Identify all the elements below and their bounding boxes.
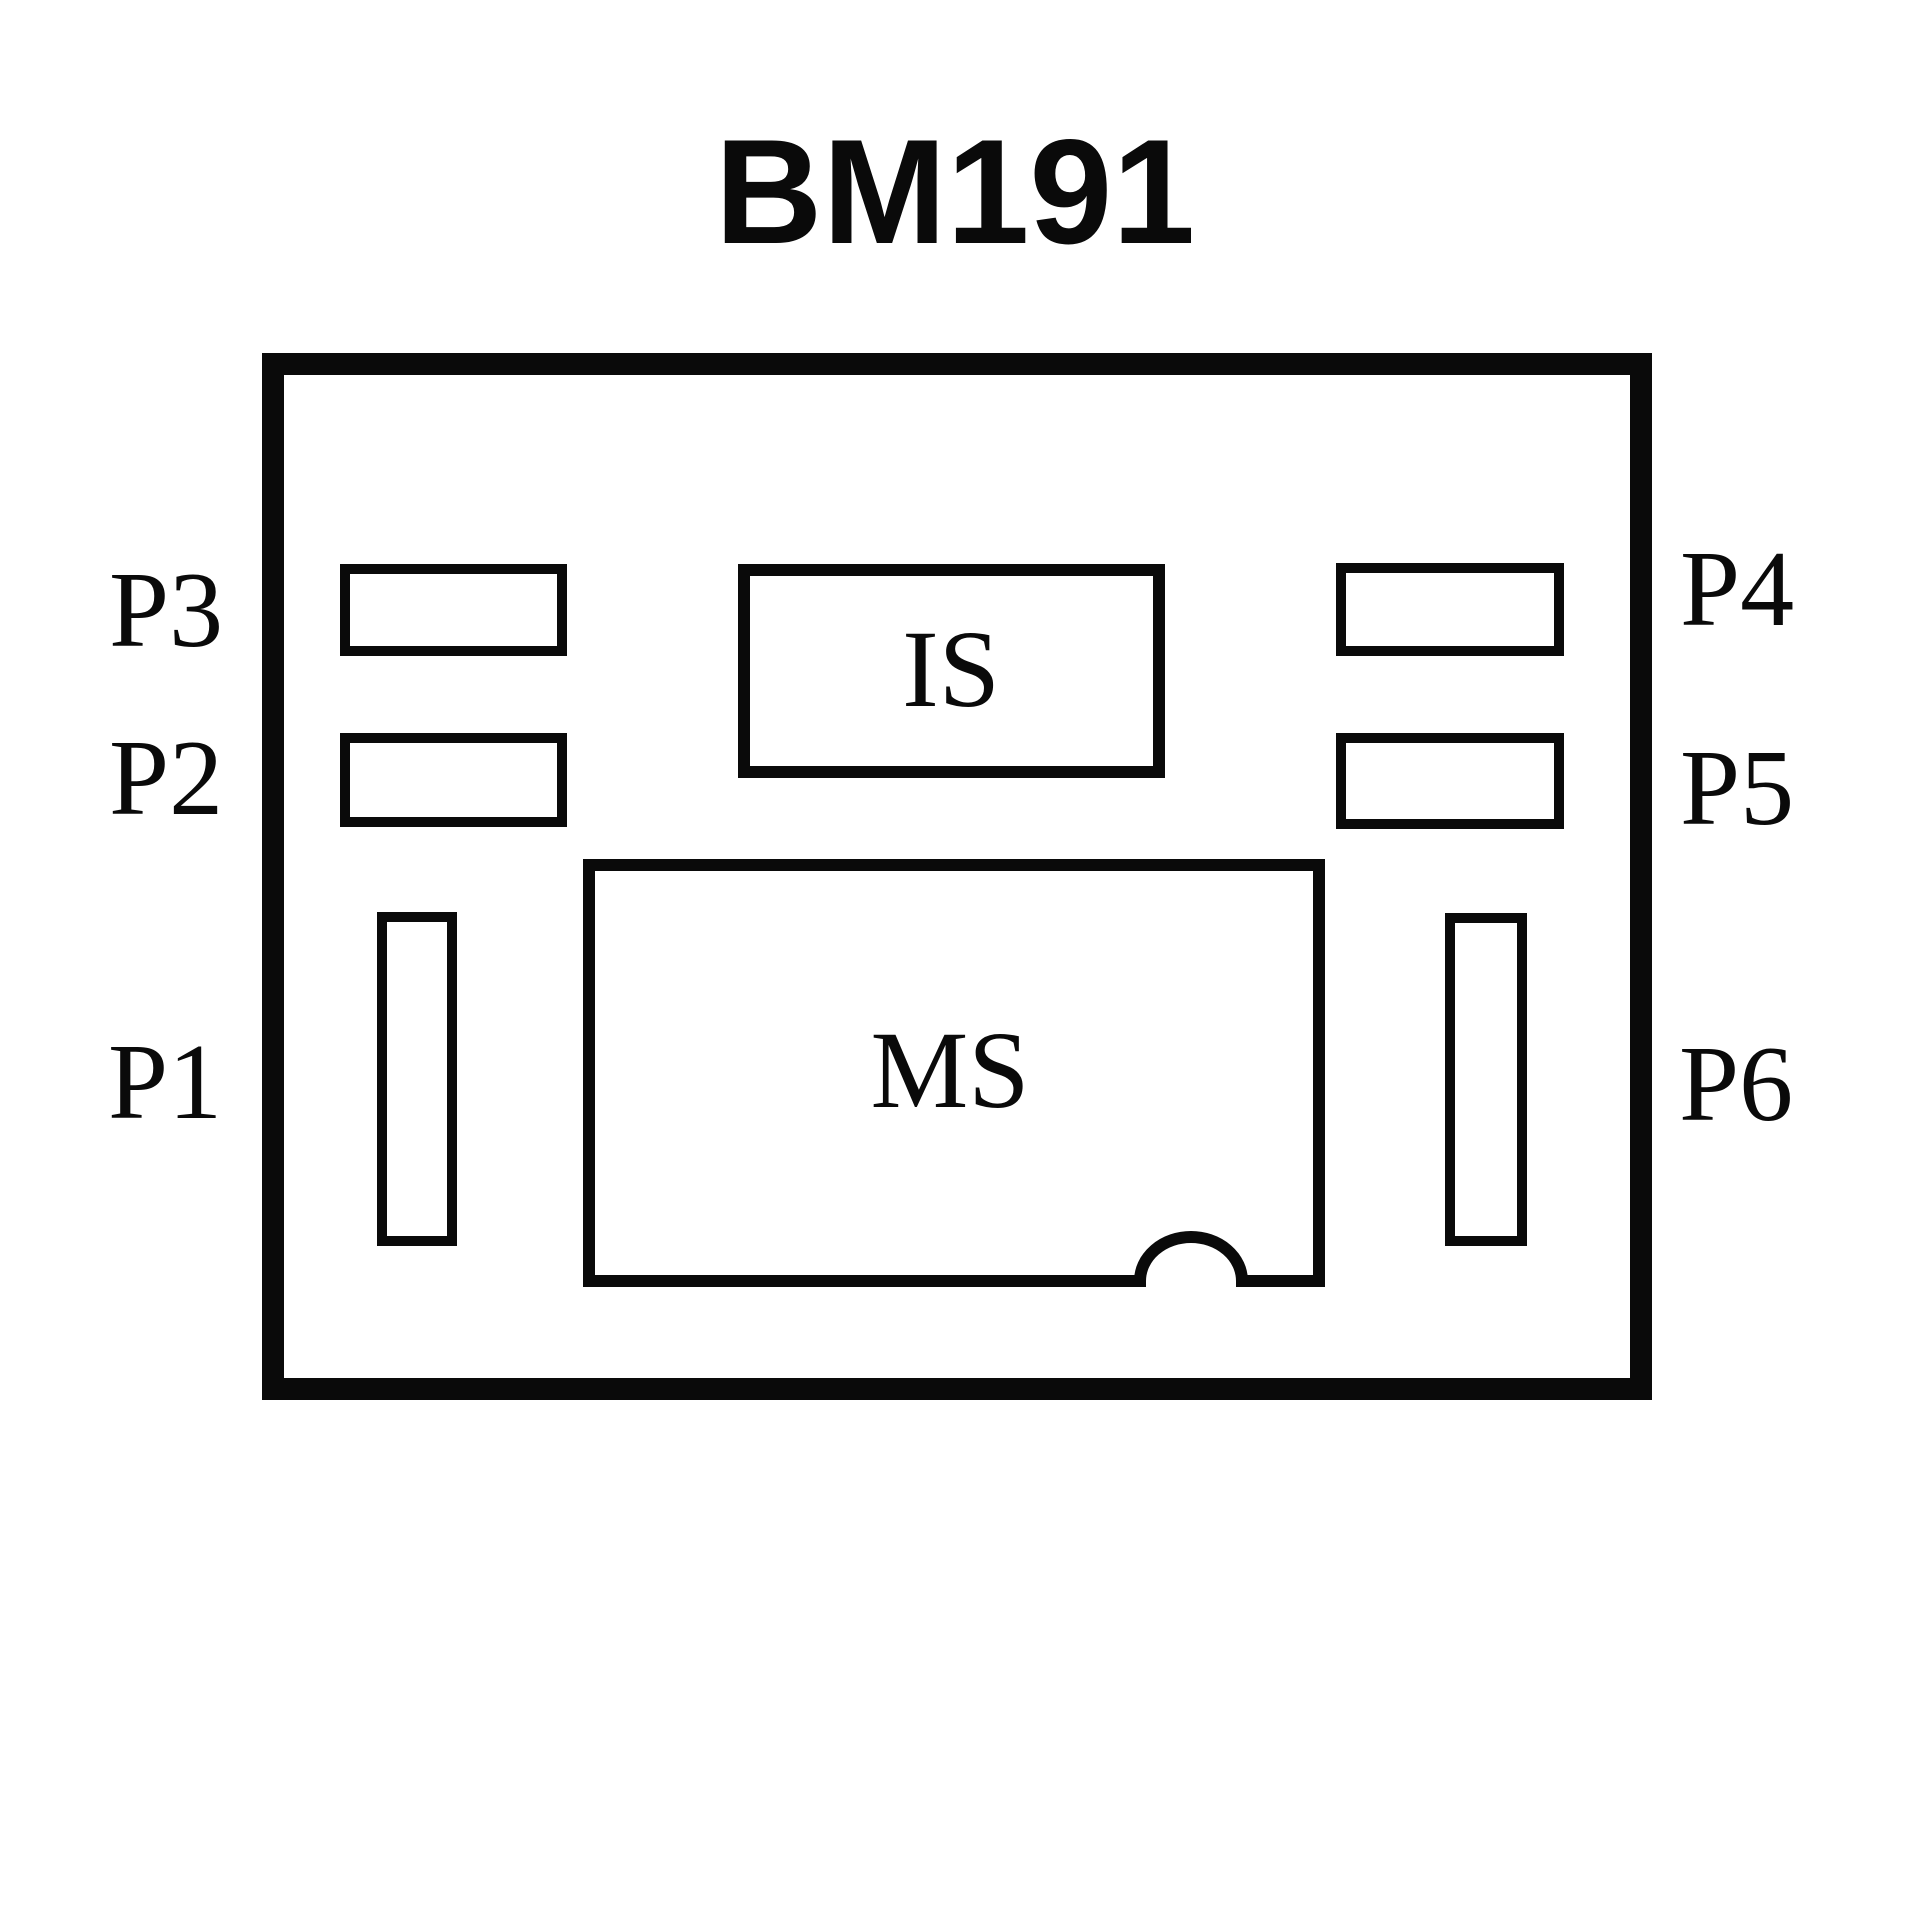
svg-text:MS: MS: [871, 1009, 1030, 1131]
svg-text:P2: P2: [109, 719, 223, 838]
svg-text:BM191: BM191: [715, 108, 1195, 275]
svg-text:IS: IS: [902, 608, 1000, 730]
svg-text:P3: P3: [109, 551, 223, 670]
svg-text:P5: P5: [1680, 729, 1794, 848]
svg-text:P1: P1: [108, 1023, 222, 1142]
svg-text:P4: P4: [1680, 530, 1794, 649]
svg-text:P6: P6: [1679, 1025, 1793, 1144]
